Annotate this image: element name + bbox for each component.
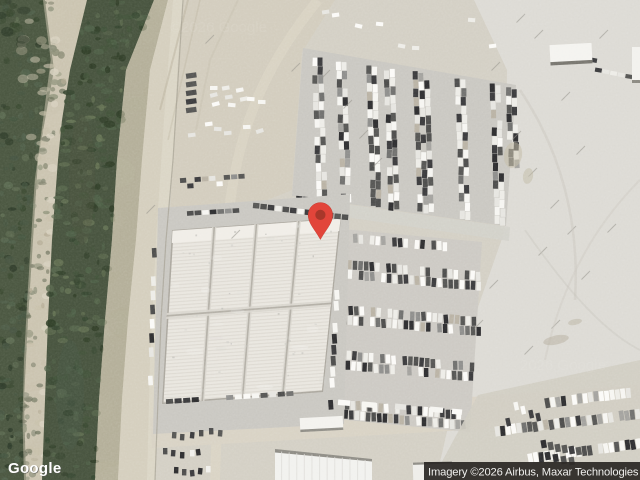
svg-text:Google: Google bbox=[8, 460, 61, 477]
svg-text:©2026 Google: ©2026 Google bbox=[170, 19, 267, 36]
svg-text:Imagery ©2026 Airbus, Maxar Te: Imagery ©2026 Airbus, Maxar Technologies bbox=[428, 467, 639, 479]
svg-text:2026 Google: 2026 Google bbox=[520, 357, 606, 374]
